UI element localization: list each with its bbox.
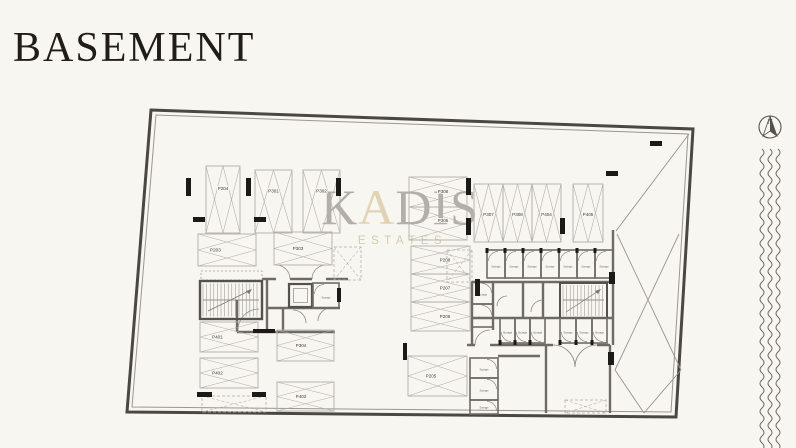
- parking-spot-label: P305: [438, 218, 449, 223]
- storage-room: Storage: [540, 248, 560, 278]
- parking-spot-label: P206: [440, 314, 451, 319]
- parking-spot-label: P308: [512, 212, 523, 217]
- elevator-shaft: [289, 284, 312, 307]
- storage-room-label: Storage: [563, 264, 573, 268]
- parking-spot-label: P401: [212, 335, 223, 340]
- parking-spot-label: P307: [483, 212, 494, 217]
- basement-floor-plan-page: BASEMENT KADIS ESTATES: [0, 0, 796, 448]
- parking-spot: P403: [277, 382, 334, 411]
- storage-room: Storage: [499, 318, 516, 345]
- stair-treads: [563, 285, 603, 316]
- parking-spot: P303: [274, 232, 332, 265]
- structural-column: [560, 218, 565, 234]
- parking-spot-label: P405: [583, 212, 594, 217]
- north-arrow-icon: N: [759, 116, 781, 138]
- storage-room-label: Storage: [527, 264, 537, 268]
- storage-room-label: Storage: [491, 264, 501, 268]
- storage-room-label: Storage: [479, 367, 489, 371]
- storage-room: Storage: [529, 318, 546, 345]
- storage-room: Storage: [591, 318, 608, 345]
- parking-spot-label: P403: [296, 394, 307, 399]
- storage-room: Storage: [313, 283, 339, 308]
- parking-spot-label: P203: [210, 248, 221, 253]
- parking-spot: P401: [200, 322, 258, 352]
- storage-room-label: Storage: [478, 315, 488, 319]
- parking-spot-label: P302: [316, 189, 327, 194]
- storage-room-label: Storage: [579, 331, 589, 335]
- stair-direction-arrow: [246, 289, 252, 294]
- structural-column: [403, 343, 407, 360]
- parking-spot-label: P204: [218, 186, 229, 191]
- storage-room-label: Storage: [599, 264, 609, 268]
- parking-spot: P203: [198, 234, 256, 266]
- structural-column: [253, 329, 275, 333]
- storage-room: Storage: [504, 248, 524, 278]
- structural-column: [186, 178, 191, 196]
- storage-room: Storage: [470, 358, 498, 378]
- parking-spot: P306: [409, 177, 467, 207]
- structural-column: [609, 272, 615, 284]
- storage-room-label: Storage: [321, 296, 331, 300]
- structural-column: [193, 217, 205, 222]
- storage-room-label: Storage: [503, 331, 513, 335]
- storage-room: Storage: [522, 248, 542, 278]
- dashed-parking-area: [202, 396, 266, 412]
- structural-column: [650, 141, 662, 146]
- parking-spot: P307: [474, 184, 503, 242]
- sea-waves-icon: [760, 149, 780, 448]
- storage-room: Storage: [470, 400, 498, 414]
- wave-line: [776, 149, 780, 448]
- parking-spot: P305: [409, 207, 467, 240]
- floor-plan-drawing: N P204P301P302P306P305P307P308P404P405P2…: [0, 0, 796, 448]
- structural-column: [466, 178, 471, 195]
- parking-spot: P206: [411, 302, 470, 331]
- storage-room-label: Storage: [518, 331, 528, 335]
- stairs-right: [560, 283, 607, 318]
- parking-spot: P304: [277, 330, 334, 361]
- structural-column: [336, 178, 341, 196]
- parking-spot: P208: [411, 246, 470, 274]
- storage-room: Storage: [486, 248, 506, 278]
- structural-column: [475, 279, 480, 296]
- storage-room-label: Storage: [533, 331, 543, 335]
- stair-direction-arrow: [595, 289, 601, 294]
- parking-spot-label: P205: [426, 374, 437, 379]
- storage-room: Storage: [470, 378, 498, 400]
- parking-spot: P204: [206, 166, 240, 233]
- parking-spot: P301: [255, 170, 292, 233]
- wave-line: [760, 149, 764, 448]
- wave-line: [768, 149, 772, 448]
- storage-room: Storage: [558, 248, 578, 278]
- storage-room-label: Storage: [581, 264, 591, 268]
- structural-column: [608, 352, 614, 365]
- structural-column: [252, 392, 266, 397]
- structural-column: [466, 218, 471, 235]
- parking-spot-label: P402: [212, 371, 223, 376]
- structural-column: [254, 217, 266, 222]
- structural-column: [337, 288, 341, 302]
- storage-room: Storage: [576, 248, 596, 278]
- parking-spot-label: P207: [440, 286, 451, 291]
- storage-room-label: Storage: [479, 389, 489, 393]
- parking-spot-label: P208: [440, 258, 451, 263]
- parking-spot: P405: [573, 184, 603, 242]
- interior-walls: [237, 230, 613, 413]
- dashed-parking-area: [334, 247, 361, 280]
- storage-room-label: Storage: [545, 264, 555, 268]
- parking-spot-label: P303: [293, 246, 304, 251]
- parking-spot: P308: [503, 184, 532, 242]
- parking-spot-label: P306: [438, 189, 449, 194]
- parking-spot: P205: [408, 356, 467, 396]
- parking-spot-label: P301: [268, 189, 279, 194]
- dashed-parking-area: [447, 250, 472, 282]
- storage-room: Storage: [514, 318, 531, 345]
- structural-column: [197, 392, 212, 397]
- parking-spot: P302: [303, 170, 340, 233]
- storage-room-label: Storage: [479, 406, 489, 410]
- generated-plan-elements: P204P301P302P306P305P307P308P404P405P203…: [186, 141, 662, 414]
- storage-room-label: Storage: [563, 331, 573, 335]
- storage-room: Storage: [472, 304, 493, 327]
- parking-spot: P404: [532, 184, 561, 242]
- storage-room-label: Storage: [595, 331, 605, 335]
- storage-room-label: Storage: [509, 264, 519, 268]
- parking-spot: P402: [200, 358, 258, 388]
- structural-column: [246, 178, 251, 196]
- storage-room: Storage: [575, 318, 593, 345]
- parking-spot-label: P304: [296, 343, 307, 348]
- parking-spot: P207: [411, 274, 470, 302]
- structural-column: [606, 171, 618, 176]
- parking-spot-label: P404: [541, 212, 552, 217]
- stairs-left: [200, 271, 262, 319]
- storage-room: Storage: [559, 318, 577, 345]
